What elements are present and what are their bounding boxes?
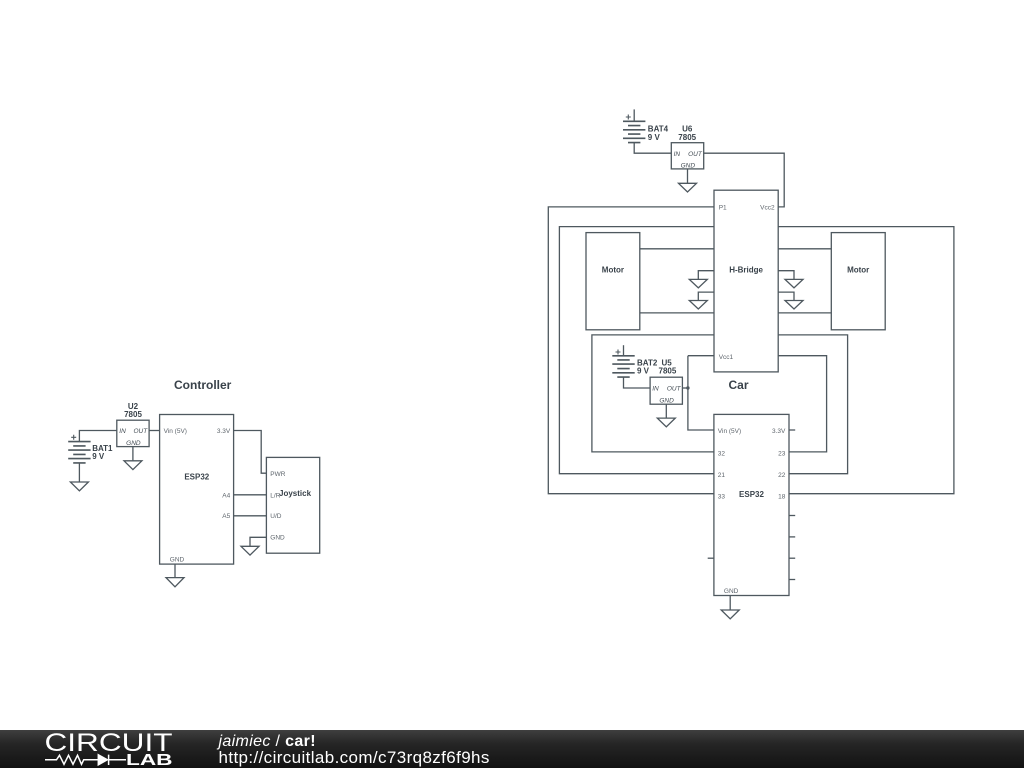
svg-text:OUT: OUT bbox=[688, 151, 703, 158]
svg-text:Vin (5V): Vin (5V) bbox=[164, 428, 187, 435]
svg-text:23: 23 bbox=[778, 450, 786, 457]
svg-text:Vin (5V): Vin (5V) bbox=[718, 428, 741, 435]
svg-text:Controller: Controller bbox=[174, 378, 232, 392]
svg-text:7805: 7805 bbox=[678, 133, 696, 142]
svg-text:OUT: OUT bbox=[667, 386, 682, 393]
svg-text:22: 22 bbox=[778, 472, 786, 479]
svg-text:IN: IN bbox=[652, 386, 659, 393]
svg-text:A5: A5 bbox=[222, 513, 230, 520]
svg-text:Vcc1: Vcc1 bbox=[719, 354, 734, 361]
svg-text:7805: 7805 bbox=[124, 410, 142, 419]
svg-text:PWR: PWR bbox=[270, 471, 285, 478]
svg-text:Motor: Motor bbox=[847, 266, 869, 275]
svg-text:GND: GND bbox=[170, 556, 185, 563]
svg-text:L/R: L/R bbox=[270, 493, 280, 500]
svg-text:3.3V: 3.3V bbox=[217, 428, 231, 435]
svg-text:GND: GND bbox=[724, 588, 739, 595]
svg-text:P1: P1 bbox=[719, 204, 727, 211]
svg-text:Motor: Motor bbox=[602, 266, 624, 275]
svg-text:IN: IN bbox=[119, 428, 126, 435]
svg-text:OUT: OUT bbox=[133, 428, 148, 435]
svg-text:GND: GND bbox=[126, 440, 141, 447]
svg-text:21: 21 bbox=[718, 472, 726, 479]
svg-text:33: 33 bbox=[718, 494, 726, 501]
svg-text:A4: A4 bbox=[222, 493, 230, 500]
svg-text:GND: GND bbox=[659, 397, 674, 404]
svg-text:ESP32: ESP32 bbox=[739, 490, 764, 499]
svg-text:18: 18 bbox=[778, 494, 786, 501]
svg-text:32: 32 bbox=[718, 450, 726, 457]
svg-text:ESP32: ESP32 bbox=[184, 473, 209, 482]
svg-text:Joystick: Joystick bbox=[279, 489, 312, 498]
svg-text:IN: IN bbox=[674, 151, 681, 158]
svg-text:9 V: 9 V bbox=[92, 452, 105, 461]
svg-text:H-Bridge: H-Bridge bbox=[729, 266, 763, 275]
svg-text:Vcc2: Vcc2 bbox=[760, 204, 775, 211]
svg-text:Car: Car bbox=[728, 378, 748, 392]
svg-text:9 V: 9 V bbox=[648, 133, 661, 142]
svg-text:GND: GND bbox=[681, 163, 696, 170]
svg-text:9 V: 9 V bbox=[637, 367, 650, 376]
svg-text:U/D: U/D bbox=[270, 513, 282, 520]
svg-text:LAB: LAB bbox=[126, 752, 173, 768]
svg-text:3.3V: 3.3V bbox=[772, 428, 786, 435]
svg-text:7805: 7805 bbox=[659, 367, 677, 376]
svg-text:GND: GND bbox=[270, 535, 285, 542]
